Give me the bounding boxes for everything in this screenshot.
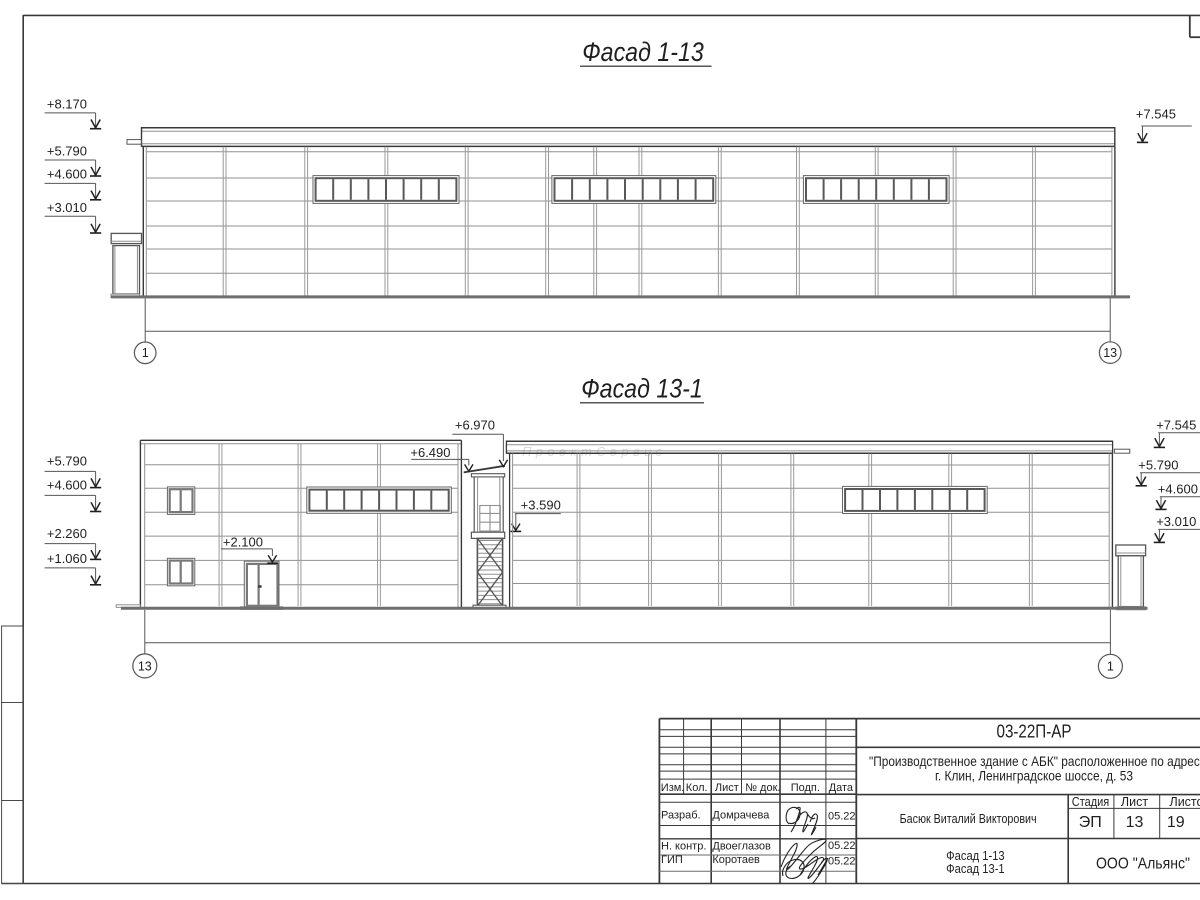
svg-text:Изм.: Изм. xyxy=(661,782,685,794)
svg-text:+5.790: +5.790 xyxy=(47,453,87,468)
svg-text:13: 13 xyxy=(1126,814,1144,831)
svg-text:Коротаев: Коротаев xyxy=(712,854,760,866)
svg-text:ООО "Альянс": ООО "Альянс" xyxy=(1096,855,1190,872)
svg-text:19: 19 xyxy=(1167,814,1185,831)
svg-text:13: 13 xyxy=(138,659,152,673)
svg-text:Стадия: Стадия xyxy=(1072,795,1110,809)
svg-text:+7.545: +7.545 xyxy=(1156,418,1196,433)
svg-text:+3.590: +3.590 xyxy=(521,497,561,512)
svg-text:03-22П-АР: 03-22П-АР xyxy=(997,721,1072,742)
svg-text:Подп.: Подп. xyxy=(791,782,820,794)
svg-text:Фасад 1-13: Фасад 1-13 xyxy=(582,37,704,67)
svg-text:Лист: Лист xyxy=(1121,795,1148,809)
svg-text:1: 1 xyxy=(142,346,149,360)
svg-text:ЭП: ЭП xyxy=(1079,814,1102,831)
svg-text:ГИП: ГИП xyxy=(661,854,683,866)
svg-text:Разраб.: Разраб. xyxy=(661,810,701,822)
svg-text:05.22: 05.22 xyxy=(828,856,856,868)
svg-text:+6.490: +6.490 xyxy=(410,445,450,460)
svg-text:+1.060: +1.060 xyxy=(47,551,87,566)
svg-text:Домрачева: Домрачева xyxy=(712,810,770,822)
svg-text:+8.170: +8.170 xyxy=(47,97,87,112)
svg-text:+3.010: +3.010 xyxy=(47,200,87,215)
svg-text:+5.790: +5.790 xyxy=(1138,458,1178,473)
svg-text:05.22: 05.22 xyxy=(828,811,856,823)
svg-text:Двоеглазов: Двоеглазов xyxy=(712,840,771,852)
svg-text:+4.600: +4.600 xyxy=(47,167,87,182)
svg-text:Листов: Листов xyxy=(1170,795,1200,809)
svg-text:+2.260: +2.260 xyxy=(47,526,87,541)
svg-text:+6.970: +6.970 xyxy=(455,417,495,432)
svg-text:Дата: Дата xyxy=(829,782,854,794)
svg-text:г. Клин, Ленинградское шоссе,: г. Клин, Ленинградское шоссе, д. 53 xyxy=(935,767,1133,783)
svg-text:Фасад 13-1: Фасад 13-1 xyxy=(581,374,703,404)
svg-text:13: 13 xyxy=(1103,346,1117,360)
svg-text:05.22: 05.22 xyxy=(828,840,856,852)
svg-text:+4.600: +4.600 xyxy=(1158,482,1198,497)
svg-text:+7.545: +7.545 xyxy=(1136,106,1176,121)
svg-text:Лист: Лист xyxy=(715,782,739,794)
svg-text:+2.100: +2.100 xyxy=(223,534,263,549)
svg-text:+3.010: +3.010 xyxy=(1156,514,1196,529)
svg-text:Кол.: Кол. xyxy=(686,782,708,794)
svg-text:Басюк Виталий Викторович: Басюк Виталий Викторович xyxy=(900,811,1037,826)
svg-text:Фасад 13-1: Фасад 13-1 xyxy=(946,861,1005,876)
svg-text:Н. контр.: Н. контр. xyxy=(661,840,706,852)
svg-text:1: 1 xyxy=(1107,660,1114,674)
svg-text:+5.790: +5.790 xyxy=(47,144,87,159)
svg-text:№ док.: № док. xyxy=(745,782,780,794)
svg-text:+4.600: +4.600 xyxy=(47,478,87,493)
